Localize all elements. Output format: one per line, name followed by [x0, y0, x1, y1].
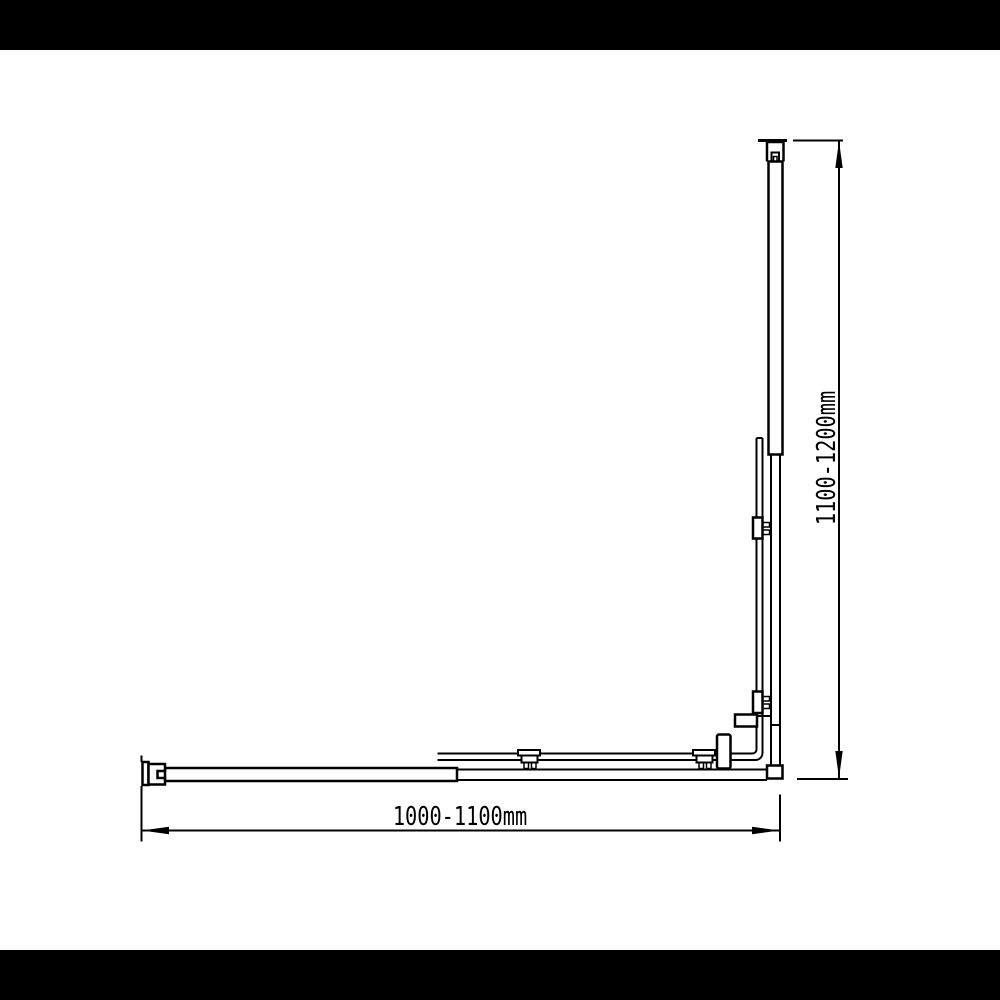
vertical-wall-profile: [771, 455, 780, 767]
arrow-up-icon: [835, 141, 842, 168]
arrow-down-icon: [835, 751, 842, 778]
hinge-block: [735, 715, 780, 727]
left-roller-bracket: [518, 750, 540, 769]
bottom-rail: [457, 770, 767, 781]
horizontal-support-bar: [165, 768, 457, 781]
arrow-right-icon: [752, 827, 779, 834]
corner-connector-block: [767, 766, 783, 779]
shower-screen-line-drawing: [0, 0, 1000, 1000]
left-wall-bracket: [143, 762, 166, 785]
diagram-canvas: 1000-1100mm 1100-1200mm: [0, 0, 1000, 1000]
height-dimension-label: 1100-1200mm: [814, 391, 840, 525]
width-dimension-label: 1000-1100mm: [393, 804, 527, 830]
top-wall-bracket: [758, 141, 787, 162]
upper-glass-clamp: [753, 518, 770, 539]
lower-glass-clamp: [753, 692, 770, 714]
right-roller-bracket: [693, 750, 715, 769]
corner-post-block: [717, 735, 731, 769]
vertical-support-bar: [769, 162, 783, 455]
bottom-letterbox-bar: [0, 950, 1000, 1000]
arrow-left-icon: [142, 827, 169, 834]
